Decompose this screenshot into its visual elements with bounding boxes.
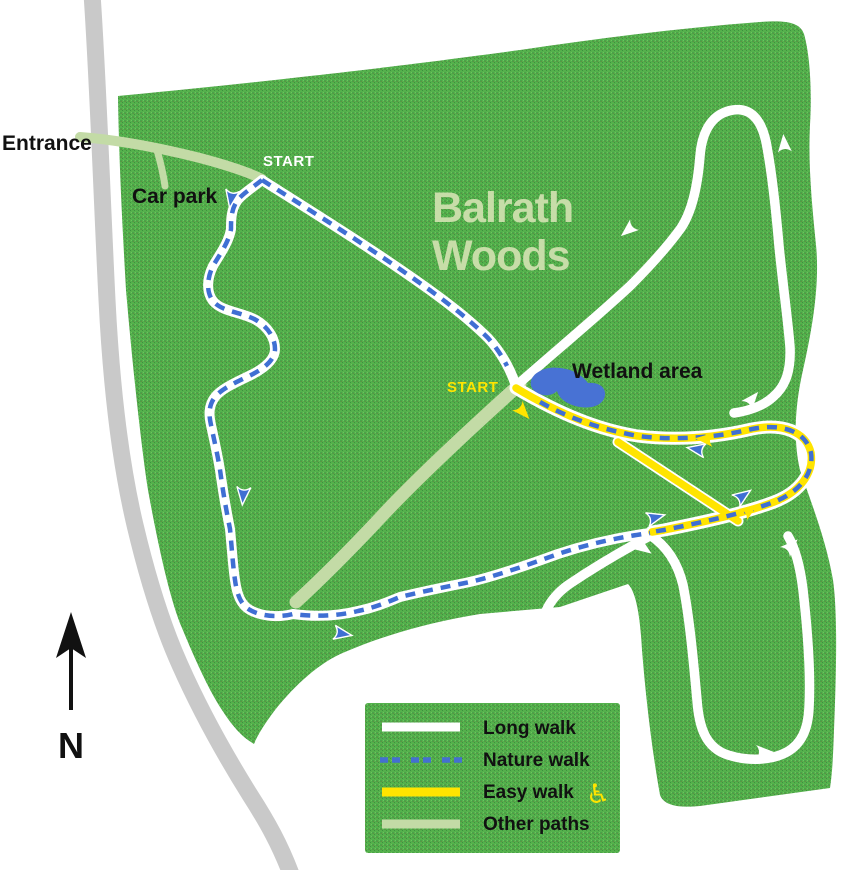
car-park-label: Car park — [132, 185, 218, 208]
legend-label-nature-walk: Nature walk — [483, 750, 590, 771]
wheelchair-icon: ♿ — [586, 779, 610, 810]
north-label: N — [58, 725, 84, 766]
balrath-woods-map-page: N Entrance Car park START START Wetland … — [0, 0, 842, 870]
start-long-walk-label: START — [263, 153, 314, 170]
map-title-line2: Woods — [432, 232, 570, 280]
balrath-woods-map: N Entrance Car park START START Wetland … — [0, 0, 842, 870]
legend-label-other-paths: Other paths — [483, 814, 590, 835]
wetland-label: Wetland area — [572, 360, 703, 383]
woodland-area — [118, 21, 836, 806]
legend-label-easy-walk: Easy walk — [483, 782, 574, 803]
north-indicator: N — [56, 612, 86, 766]
legend-label-long-walk: Long walk — [483, 718, 576, 739]
entrance-label: Entrance — [2, 132, 92, 155]
start-easy-walk-label: START — [447, 379, 498, 396]
map-title-line1: Balrath — [432, 184, 573, 232]
